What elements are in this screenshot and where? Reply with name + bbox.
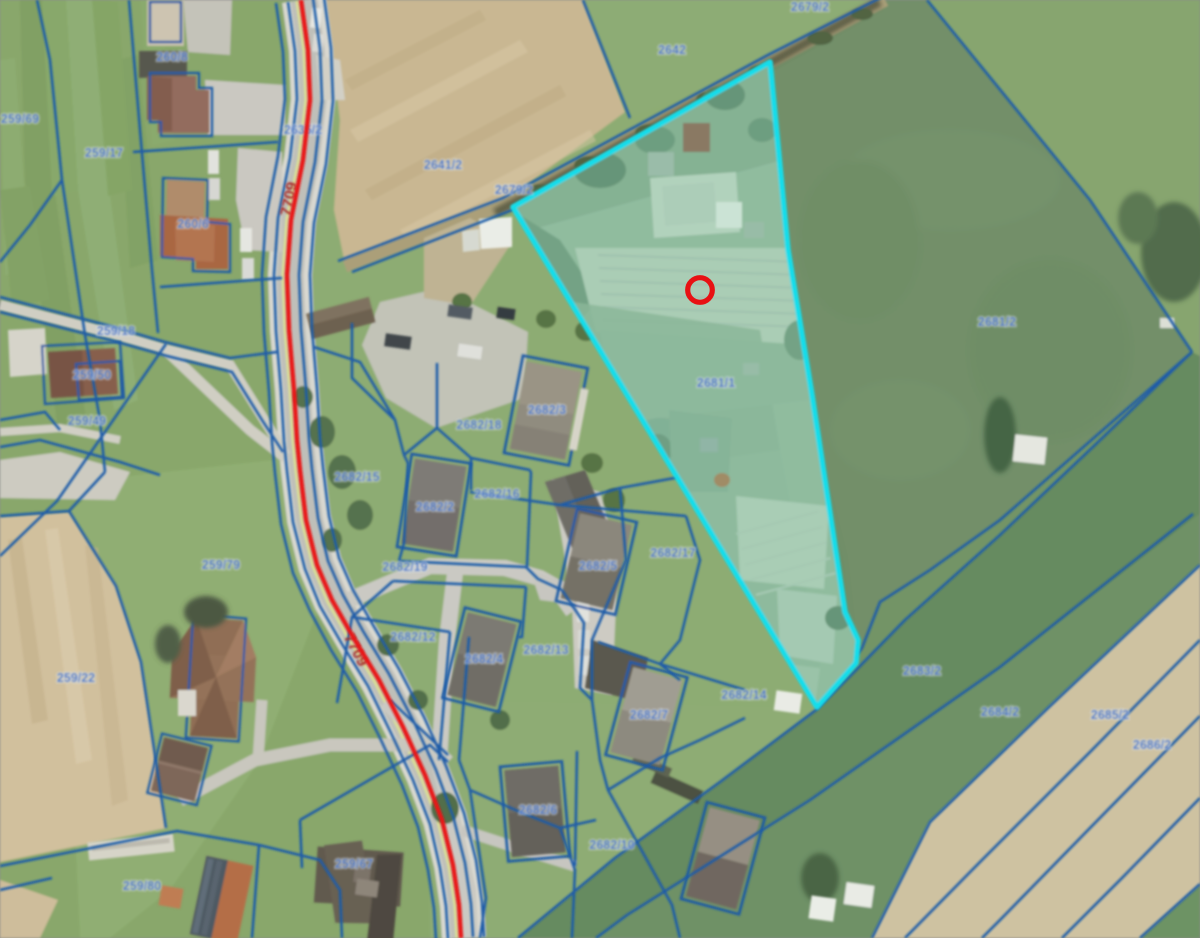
svg-text:259/22: 259/22 <box>57 671 95 685</box>
svg-text:259/79: 259/79 <box>202 558 240 572</box>
svg-text:260/6: 260/6 <box>177 217 208 231</box>
svg-text:2682/19: 2682/19 <box>382 560 427 574</box>
svg-text:2685/2: 2685/2 <box>1091 708 1129 722</box>
svg-text:2682/15: 2682/15 <box>334 470 379 484</box>
svg-text:2684/2: 2684/2 <box>981 705 1019 719</box>
svg-text:2682/5: 2682/5 <box>579 559 617 573</box>
svg-text:259/18: 259/18 <box>97 324 135 338</box>
svg-text:2682/14: 2682/14 <box>721 688 766 702</box>
svg-text:259/49: 259/49 <box>68 414 106 428</box>
svg-text:2682/2: 2682/2 <box>416 500 454 514</box>
svg-text:2682/18: 2682/18 <box>456 418 501 432</box>
svg-text:259/69: 259/69 <box>1 112 39 126</box>
svg-text:2682/3: 2682/3 <box>528 403 566 417</box>
svg-text:2635/2: 2635/2 <box>284 123 322 137</box>
svg-text:2682/12: 2682/12 <box>390 630 435 644</box>
svg-text:2681/1: 2681/1 <box>697 376 735 390</box>
svg-text:259/67: 259/67 <box>335 857 373 871</box>
svg-text:259/17: 259/17 <box>85 146 123 160</box>
svg-text:2682/16: 2682/16 <box>474 487 519 501</box>
svg-text:2682/13: 2682/13 <box>523 643 568 657</box>
svg-text:2686/2: 2686/2 <box>1133 738 1171 752</box>
svg-text:2679/2: 2679/2 <box>495 183 533 197</box>
svg-text:2681/2: 2681/2 <box>978 315 1016 329</box>
svg-text:259/80: 259/80 <box>123 879 161 893</box>
svg-text:2682/7: 2682/7 <box>630 708 668 722</box>
svg-text:2683/2: 2683/2 <box>903 664 941 678</box>
svg-text:2641/2: 2641/2 <box>424 158 462 172</box>
svg-text:2682/6: 2682/6 <box>519 803 557 817</box>
svg-text:2682/4: 2682/4 <box>465 652 503 666</box>
svg-text:2682/17: 2682/17 <box>650 546 695 560</box>
svg-text:2679/2: 2679/2 <box>791 0 829 14</box>
svg-text:2642: 2642 <box>658 43 686 57</box>
svg-text:260/8: 260/8 <box>156 50 187 64</box>
svg-text:2682/10: 2682/10 <box>589 838 634 852</box>
svg-text:259/50: 259/50 <box>73 368 111 382</box>
